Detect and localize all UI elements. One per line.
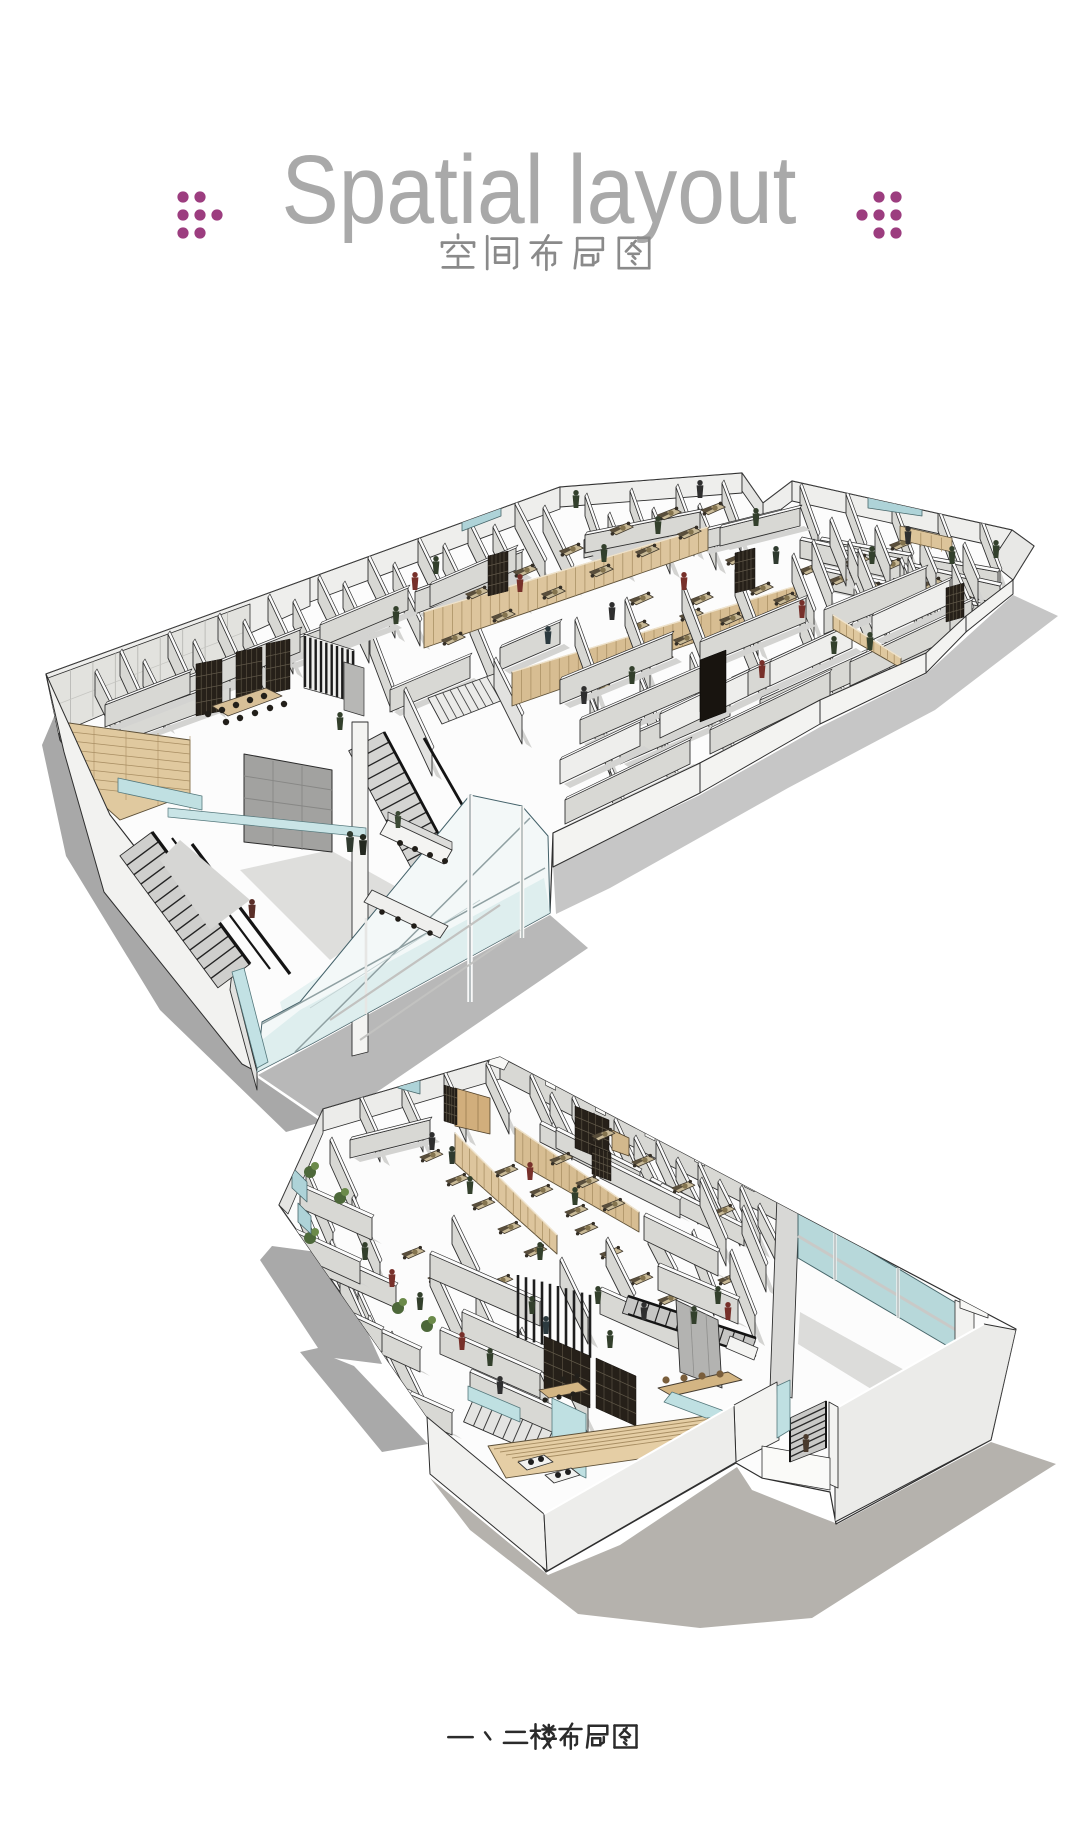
svg-text:Spatial layout: Spatial layout (282, 135, 797, 244)
